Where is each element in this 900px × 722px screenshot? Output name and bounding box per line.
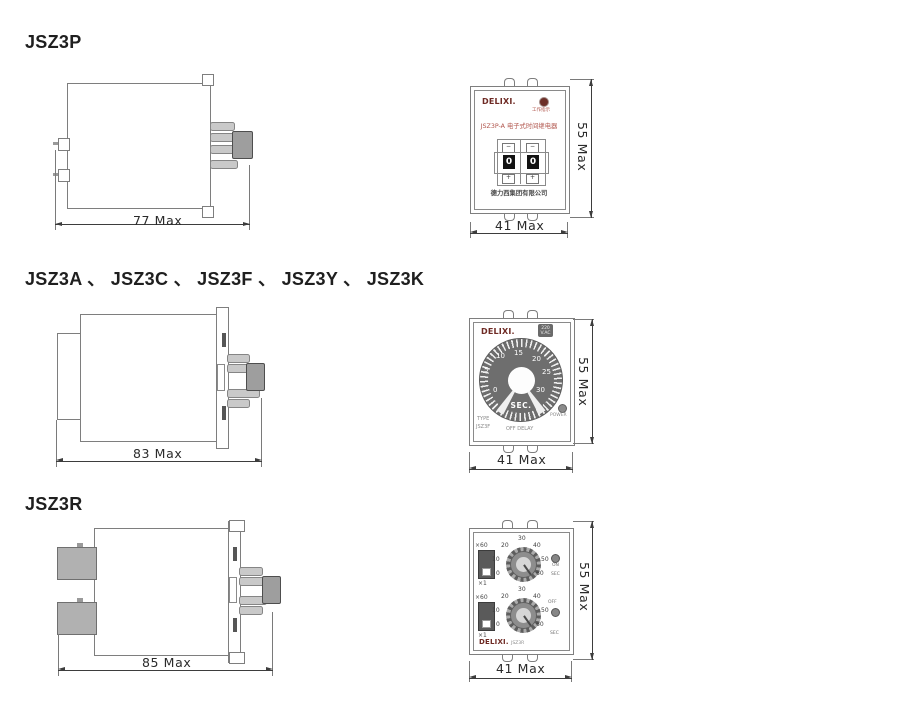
dim-line — [591, 79, 592, 218]
on-label: ON — [552, 563, 559, 568]
wheel-plus-button: + — [502, 174, 515, 184]
pin — [227, 399, 250, 408]
scale-number: 40 — [533, 542, 541, 549]
dim-arrow — [255, 458, 262, 462]
dim-arrow — [589, 211, 593, 218]
dim-label-length: 83 Max — [133, 446, 182, 461]
scale-number: 30 — [518, 586, 526, 593]
model-title: JSZ3P-A 电子式时间继电器 — [475, 121, 563, 130]
dim-arrow — [565, 675, 572, 679]
pin — [227, 354, 250, 363]
dial-unit: SEC. — [480, 401, 562, 410]
dim-arrow — [469, 675, 476, 679]
pin — [239, 567, 263, 576]
pin — [210, 160, 238, 169]
indicator-led — [539, 97, 549, 107]
dim-arrow — [590, 319, 594, 326]
dim-line — [592, 319, 593, 444]
dim-arrow — [266, 667, 273, 671]
off-led — [551, 608, 560, 617]
side-view-knob-housing — [57, 333, 82, 420]
dim-label-height: 55 Max — [575, 122, 590, 171]
dim-label-height: 55 Max — [576, 357, 591, 406]
dim-label-length: 77 Max — [133, 213, 182, 228]
dim-arrow — [469, 466, 476, 470]
side-knob — [57, 547, 97, 580]
type-value: JSZ3F — [476, 424, 490, 430]
pin — [239, 606, 263, 615]
dial-number: 0 — [493, 386, 497, 394]
dim-line — [592, 521, 593, 660]
dim-extension-line — [55, 150, 56, 230]
dim-label-length: 85 Max — [142, 655, 191, 670]
dim-extension-line — [272, 612, 273, 676]
voltage-badge-line2: V.AC — [540, 331, 550, 336]
keying-slot — [229, 577, 237, 603]
dim-extension-line — [261, 398, 262, 467]
digit-window: 0 — [503, 155, 515, 169]
scale-number: 60 — [536, 621, 544, 628]
dim-arrow — [566, 466, 573, 470]
scale-number: 0 — [496, 570, 500, 577]
knob-tick — [77, 598, 83, 602]
side-view-body — [80, 314, 218, 442]
switch-slider — [482, 620, 491, 628]
multiplier-label-x60: ×60 — [475, 594, 488, 601]
mounting-tab — [202, 74, 214, 86]
dim-label-width: 41 Max — [496, 661, 545, 676]
dim-extension-line — [249, 165, 250, 230]
dial-number: 15 — [514, 349, 523, 357]
dim-line — [58, 670, 273, 671]
dim-arrow — [470, 230, 477, 234]
unit-label: SEC — [550, 631, 559, 636]
flange-slot — [222, 406, 226, 420]
digit-window: 0 — [527, 155, 539, 169]
dim-label-height: 55 Max — [577, 562, 592, 611]
off-label: OFF — [548, 600, 557, 605]
power-label: POWER — [550, 413, 567, 418]
dim-label-width: 41 Max — [497, 452, 546, 467]
scale-number: 20 — [501, 593, 509, 600]
terminal — [58, 138, 70, 151]
indicator-label: 工作指示 — [532, 107, 550, 113]
model-label: JSZ3R — [511, 641, 524, 646]
brand-logo: DELIXI. — [479, 638, 509, 646]
dial-number: 25 — [542, 368, 551, 376]
company-name: 德力西集团有限公司 — [475, 188, 563, 197]
flange-slot — [233, 618, 237, 632]
dial-number: 5 — [484, 366, 488, 374]
scale-number: 60 — [536, 570, 544, 577]
mounting-tab — [229, 652, 245, 664]
dim-line — [56, 461, 262, 462]
terminal-screw — [53, 142, 58, 145]
brand-logo: DELIXI. — [482, 97, 516, 106]
scale-number: 50 — [541, 556, 549, 563]
type-label: TYPE — [477, 416, 489, 422]
side-view-body — [94, 528, 230, 656]
voltage-badge: 220 V.AC — [538, 324, 553, 337]
dim-arrow — [56, 458, 63, 462]
plug-connector — [262, 576, 281, 604]
dim-line — [469, 469, 573, 470]
side-knob — [57, 602, 97, 635]
dim-arrow — [590, 437, 594, 444]
timer-dial: 0 5 10 15 20 25 30 SEC. — [479, 338, 563, 422]
pin — [210, 122, 235, 131]
section-heading-jsz3p: JSZ3P — [25, 32, 82, 53]
scale-number: 10 — [492, 607, 500, 614]
dim-arrow — [590, 521, 594, 528]
scale-number: 50 — [541, 607, 549, 614]
section-heading-jsz3r: JSZ3R — [25, 494, 83, 515]
datasheet-page: JSZ3P 77 Max DELIXI. 工作指示 JSZ3P-A 电子式时间继… — [0, 0, 900, 722]
plug-connector — [232, 131, 253, 159]
mode-label: OFF DELAY — [506, 426, 533, 432]
dim-line — [470, 233, 568, 234]
dial-hub — [508, 367, 535, 394]
dim-line — [469, 678, 572, 679]
dim-arrow — [590, 653, 594, 660]
dim-arrow — [561, 230, 568, 234]
on-led — [551, 554, 560, 563]
brand-logo: DELIXI. — [481, 327, 515, 336]
power-led — [558, 404, 567, 413]
scale-number: 20 — [501, 542, 509, 549]
scale-number: 0 — [496, 621, 500, 628]
side-view-body — [67, 83, 211, 209]
dim-arrow — [58, 667, 65, 671]
dial-number: 30 — [536, 386, 545, 394]
dial-number: 20 — [532, 355, 541, 363]
terminal — [58, 169, 70, 182]
mounting-tab — [202, 206, 214, 218]
scale-number: 10 — [492, 556, 500, 563]
scale-number: 40 — [533, 593, 541, 600]
switch-slider — [482, 568, 491, 576]
dim-arrow — [589, 79, 593, 86]
multiplier-label-x1: ×1 — [478, 580, 487, 587]
knob-tick — [77, 543, 83, 547]
scale-number: 30 — [518, 535, 526, 542]
flange-slot — [222, 333, 226, 347]
unit-label: SEC — [551, 572, 560, 577]
mounting-tab — [229, 520, 245, 532]
wheel-plus-button: + — [526, 174, 539, 184]
dim-arrow — [55, 222, 62, 226]
keying-slot — [217, 364, 225, 391]
dim-label-width: 41 Max — [495, 218, 544, 233]
flange-slot — [233, 547, 237, 561]
dim-arrow — [243, 222, 250, 226]
multiplier-label-x60: ×60 — [475, 542, 488, 549]
section-heading-jsz3a: JSZ3A 、 JSZ3C 、 JSZ3F 、 JSZ3Y 、 JSZ3K — [25, 265, 424, 291]
plug-connector — [246, 363, 265, 391]
dial-number: 10 — [496, 352, 505, 360]
